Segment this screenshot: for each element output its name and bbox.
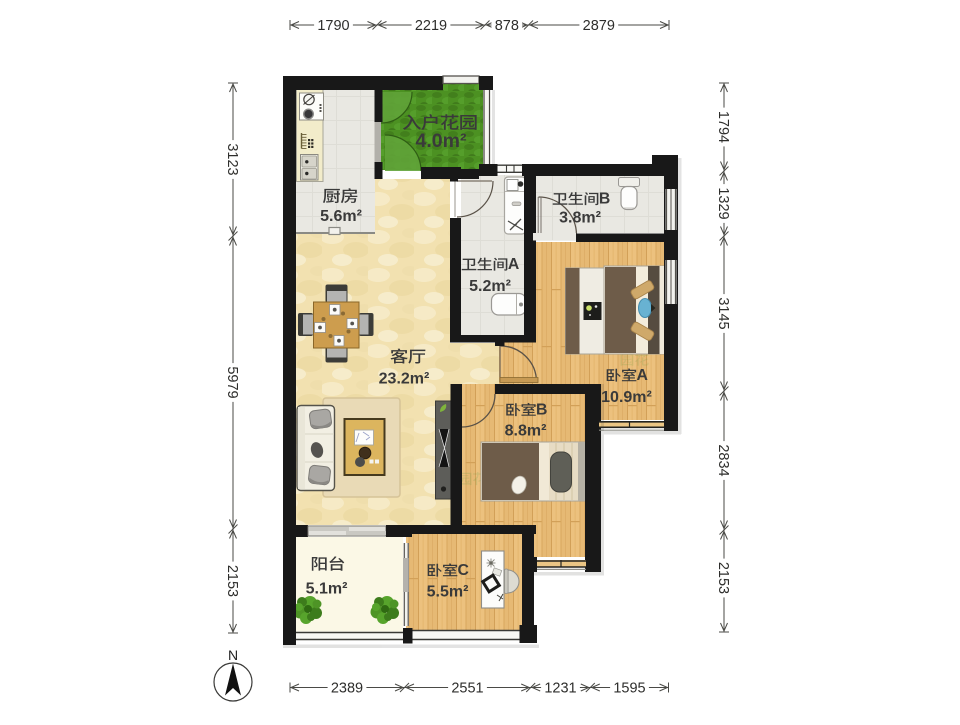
svg-text:2551: 2551 <box>451 681 483 697</box>
svg-text:1595: 1595 <box>613 681 645 697</box>
svg-text:B: B <box>599 191 610 208</box>
svg-text:1794: 1794 <box>715 111 731 143</box>
svg-text:N: N <box>228 647 238 663</box>
svg-text:2389: 2389 <box>331 681 363 697</box>
svg-text:8.8m²: 8.8m² <box>505 422 547 439</box>
svg-text:1790: 1790 <box>317 18 349 34</box>
svg-text:878: 878 <box>495 18 519 34</box>
svg-text:2153: 2153 <box>715 562 731 594</box>
svg-text:5.2m²: 5.2m² <box>469 278 511 295</box>
svg-text:23.2m²: 23.2m² <box>379 370 430 387</box>
svg-text:A: A <box>637 367 648 384</box>
svg-text:2153: 2153 <box>224 565 240 597</box>
svg-text:5.1m²: 5.1m² <box>306 580 348 597</box>
svg-text:10.9m²: 10.9m² <box>601 389 652 406</box>
svg-text:3.8m²: 3.8m² <box>559 209 601 226</box>
svg-text:1231: 1231 <box>544 681 576 697</box>
svg-text:2879: 2879 <box>583 18 615 34</box>
svg-text:A: A <box>508 256 519 273</box>
svg-text:3145: 3145 <box>715 297 731 329</box>
svg-text:C: C <box>458 562 469 579</box>
svg-text:5.5m²: 5.5m² <box>427 583 469 600</box>
svg-text:5.6m²: 5.6m² <box>320 208 362 225</box>
svg-text:1329: 1329 <box>715 187 731 219</box>
svg-text:5979: 5979 <box>224 366 240 398</box>
svg-text:2219: 2219 <box>415 18 447 34</box>
svg-text:3123: 3123 <box>224 143 240 175</box>
svg-text:B: B <box>536 402 547 419</box>
svg-text:4.0m²: 4.0m² <box>416 130 467 152</box>
svg-text:2834: 2834 <box>715 444 731 476</box>
